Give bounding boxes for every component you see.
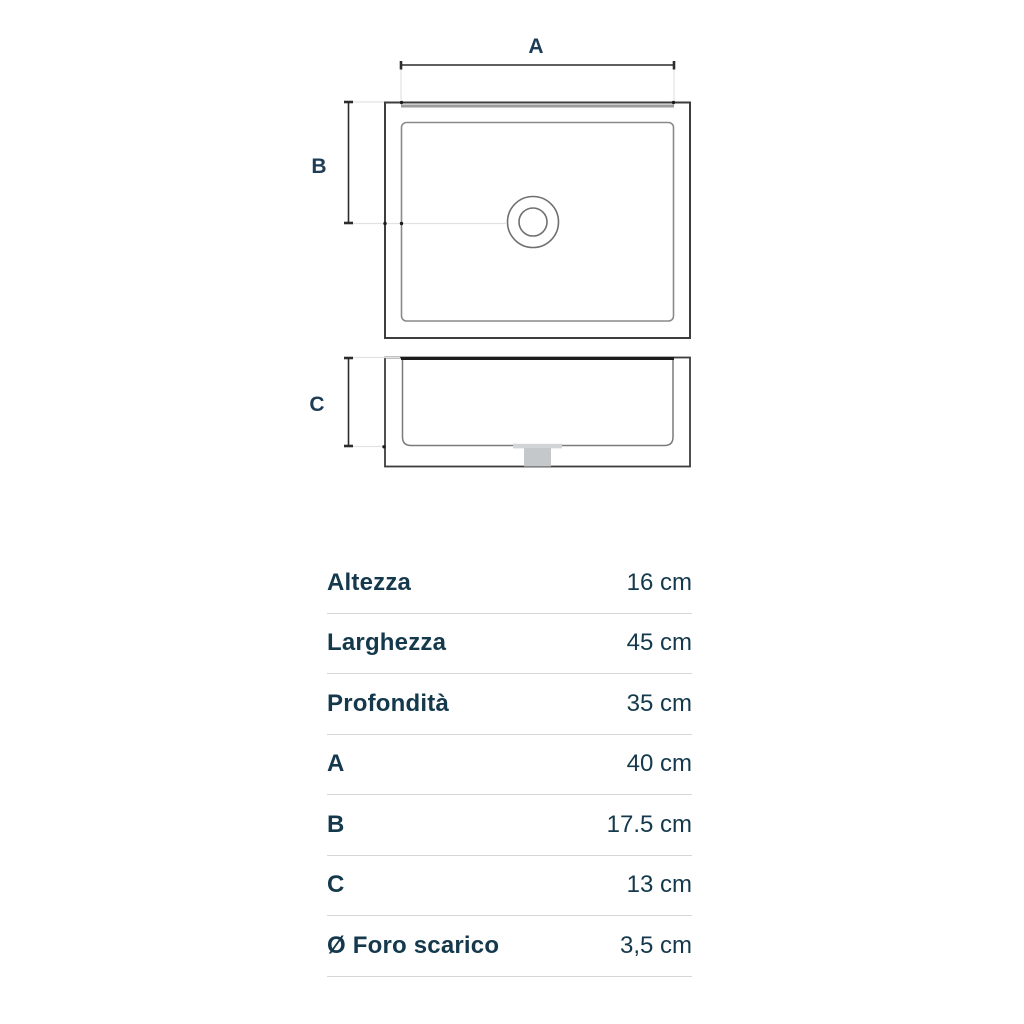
- spec-value: 16 cm: [627, 569, 692, 597]
- spec-label: A: [327, 750, 345, 778]
- top-view: [385, 103, 690, 339]
- drain-inner-circle: [519, 208, 547, 236]
- sink-technical-drawing: A B C: [0, 0, 1024, 530]
- side-view: [385, 358, 690, 467]
- spec-value: 45 cm: [627, 629, 692, 657]
- spec-value: 13 cm: [627, 871, 692, 899]
- spec-label: Larghezza: [327, 629, 446, 657]
- top-view-outer-outline: [385, 103, 690, 339]
- spec-row-larghezza: Larghezza 45 cm: [327, 614, 692, 675]
- spec-label: B: [327, 811, 345, 839]
- dim-c-anchor-dot: [382, 445, 385, 448]
- dim-b-anchor-dot-inner: [400, 222, 403, 225]
- dim-a-anchor-dot-left: [400, 101, 403, 104]
- spec-label: Profondità: [327, 690, 449, 718]
- dim-a-anchor-dot-right: [672, 101, 675, 104]
- spec-row-foro-scarico: Ø Foro scarico 3,5 cm: [327, 916, 692, 977]
- spec-label: C: [327, 871, 345, 899]
- dimension-c: C: [309, 358, 400, 449]
- spec-value: 35 cm: [627, 690, 692, 718]
- drain-flange: [513, 444, 562, 449]
- spec-value: 17.5 cm: [607, 811, 692, 839]
- spec-row-c: C 13 cm: [327, 856, 692, 917]
- dim-b-anchor-dot-outer: [383, 222, 386, 225]
- dimension-a: A: [400, 35, 675, 104]
- spec-row-altezza: Altezza 16 cm: [327, 553, 692, 614]
- drain-stub: [524, 448, 551, 467]
- spec-row-profondita: Profondità 35 cm: [327, 674, 692, 735]
- dim-a-label: A: [528, 35, 543, 58]
- spec-row-b: B 17.5 cm: [327, 795, 692, 856]
- spec-table: Altezza 16 cm Larghezza 45 cm Profondità…: [327, 553, 692, 977]
- spec-label: Altezza: [327, 569, 411, 597]
- dimension-b: B: [311, 102, 507, 225]
- top-view-basin-outline: [402, 123, 674, 322]
- spec-value: 3,5 cm: [620, 932, 692, 960]
- dim-c-label: C: [309, 393, 324, 416]
- side-view-basin-profile: [403, 360, 674, 446]
- spec-value: 40 cm: [627, 750, 692, 778]
- drain-outer-circle: [508, 197, 559, 248]
- spec-row-a: A 40 cm: [327, 735, 692, 796]
- spec-label: Ø Foro scarico: [327, 932, 499, 960]
- dim-b-label: B: [311, 155, 326, 178]
